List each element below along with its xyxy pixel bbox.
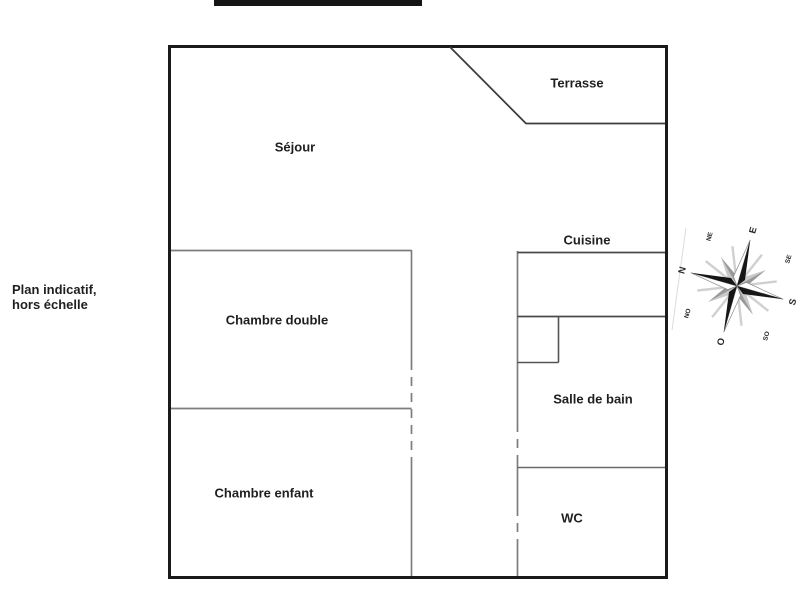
room-label-wc: WC [561,511,583,526]
room-label-terrasse: Terrasse [550,76,603,91]
compass-label-southeast: SE [784,253,793,264]
room-label-sejour: Séjour [275,140,315,155]
room-label-chambre-double: Chambre double [226,313,329,328]
floor-plan-page: Plan indicatif, hors échelle [0,0,800,600]
room-label-chambre-enfant: Chambre enfant [215,486,314,501]
compass-label-west: O [715,337,728,347]
compass-label-southwest: SO [762,331,771,342]
compass-label-northwest: NO [683,308,692,319]
floor-plan-svg: N E S O NE SE SO NO [0,0,800,600]
compass-label-north: N [676,265,689,275]
compass-rose-icon: N E S O NE SE SO NO [660,210,800,363]
compass-label-south: S [787,298,799,307]
compass-label-northeast: NE [705,231,714,242]
compass-cardinal-points [678,227,797,346]
compass-label-east: E [747,226,759,235]
room-label-salle-de-bain: Salle de bain [553,392,632,407]
room-label-cuisine: Cuisine [564,233,611,248]
